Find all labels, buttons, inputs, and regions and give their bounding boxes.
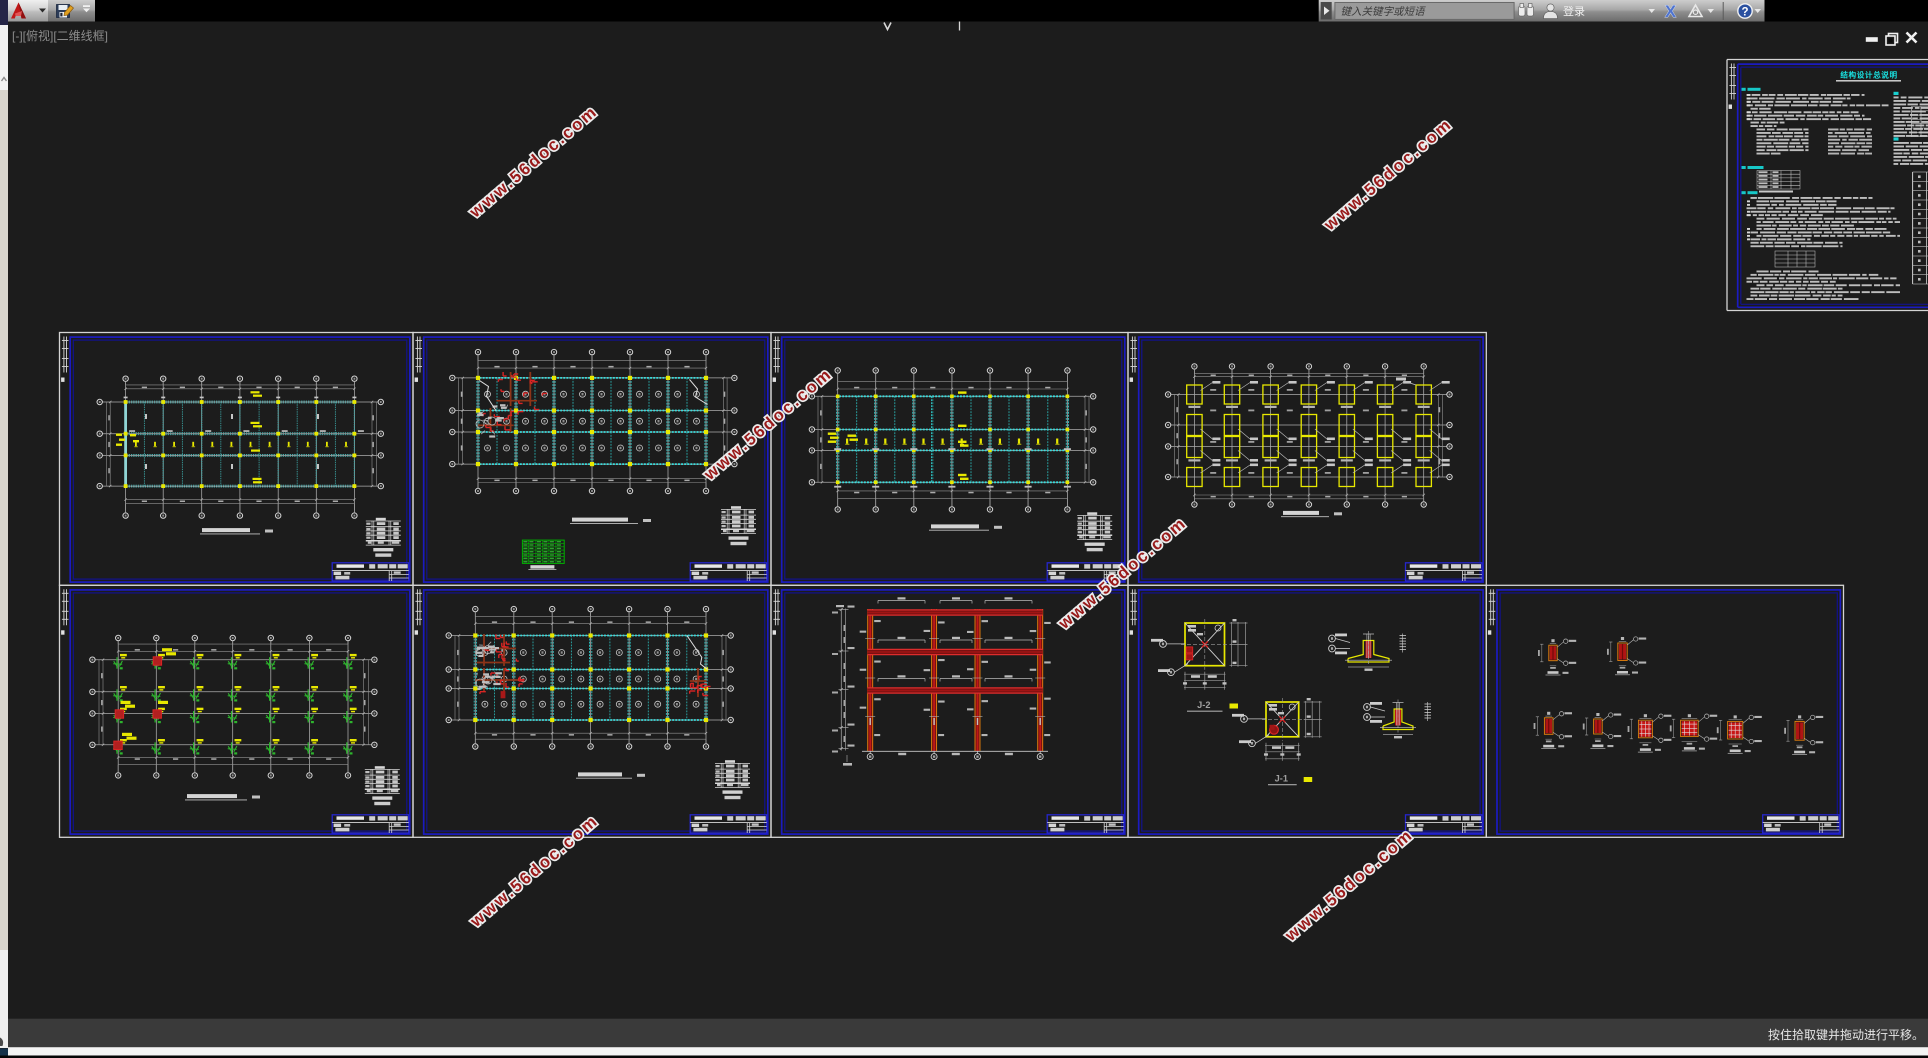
svg-text:X: X xyxy=(1665,3,1676,21)
svg-text:J-1: J-1 xyxy=(1275,774,1288,784)
svg-text:结构设计总说明: 结构设计总说明 xyxy=(1840,70,1897,80)
svg-text:登录: 登录 xyxy=(1563,4,1585,18)
svg-text:[-][俯视][二维线框]: [-][俯视][二维线框] xyxy=(12,28,108,43)
svg-text:键入关键字或短语: 键入关键字或短语 xyxy=(1341,6,1426,18)
svg-text:J-2: J-2 xyxy=(1197,700,1210,710)
svg-text:按住拾取键并拖动进行平移。: 按住拾取键并拖动进行平移。 xyxy=(1768,1027,1924,1042)
svg-text:?: ? xyxy=(1741,6,1748,18)
